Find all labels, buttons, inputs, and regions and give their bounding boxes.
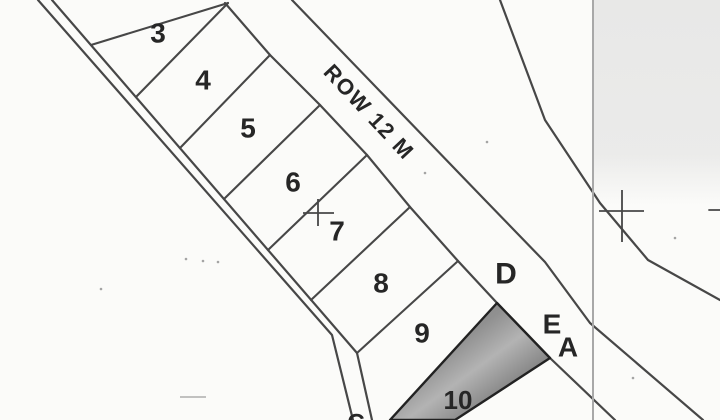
lot-number-label: 6	[285, 167, 301, 198]
lot-number-label: 3	[150, 18, 166, 49]
road-right-edge	[52, 0, 372, 420]
area-letter-label: D	[495, 258, 517, 291]
row-width-label: ROW 12 M	[319, 59, 420, 164]
divider-lot4-lot5	[180, 55, 270, 148]
lot-number-label: 4	[195, 65, 211, 96]
lots-upper-boundary	[225, 3, 615, 420]
road-left-edge	[38, 0, 353, 420]
plan-svg: 345678910DEACROW 12 M	[0, 0, 720, 420]
scan-smudge	[180, 396, 206, 398]
lot-number-label: 7	[329, 216, 345, 247]
scan-speckle	[674, 237, 677, 240]
scan-speckle	[632, 377, 635, 380]
scan-speckle	[424, 172, 427, 175]
scan-speckle	[217, 261, 220, 264]
area-letter-label: A	[558, 332, 578, 363]
lot-number-label: 5	[240, 113, 256, 144]
lot-number-label: 9	[414, 318, 430, 349]
survey-plan-page: 345678910DEACROW 12 M	[0, 0, 720, 420]
lot-number-label: 10	[444, 385, 473, 415]
divider-lot8-lot9	[357, 261, 458, 353]
scan-speckle	[486, 141, 489, 144]
divider-lot7-lot8	[311, 207, 410, 300]
scan-speckle	[100, 288, 103, 291]
scan-speckle	[202, 260, 205, 263]
map-layers: 345678910DEACROW 12 M	[38, 0, 720, 420]
lot-number-label: 8	[373, 268, 389, 299]
scan-gray-wash	[593, 0, 720, 205]
scan-speckle	[185, 258, 188, 261]
area-letter-label: C	[347, 410, 364, 420]
divider-lot5-lot6	[224, 105, 320, 199]
